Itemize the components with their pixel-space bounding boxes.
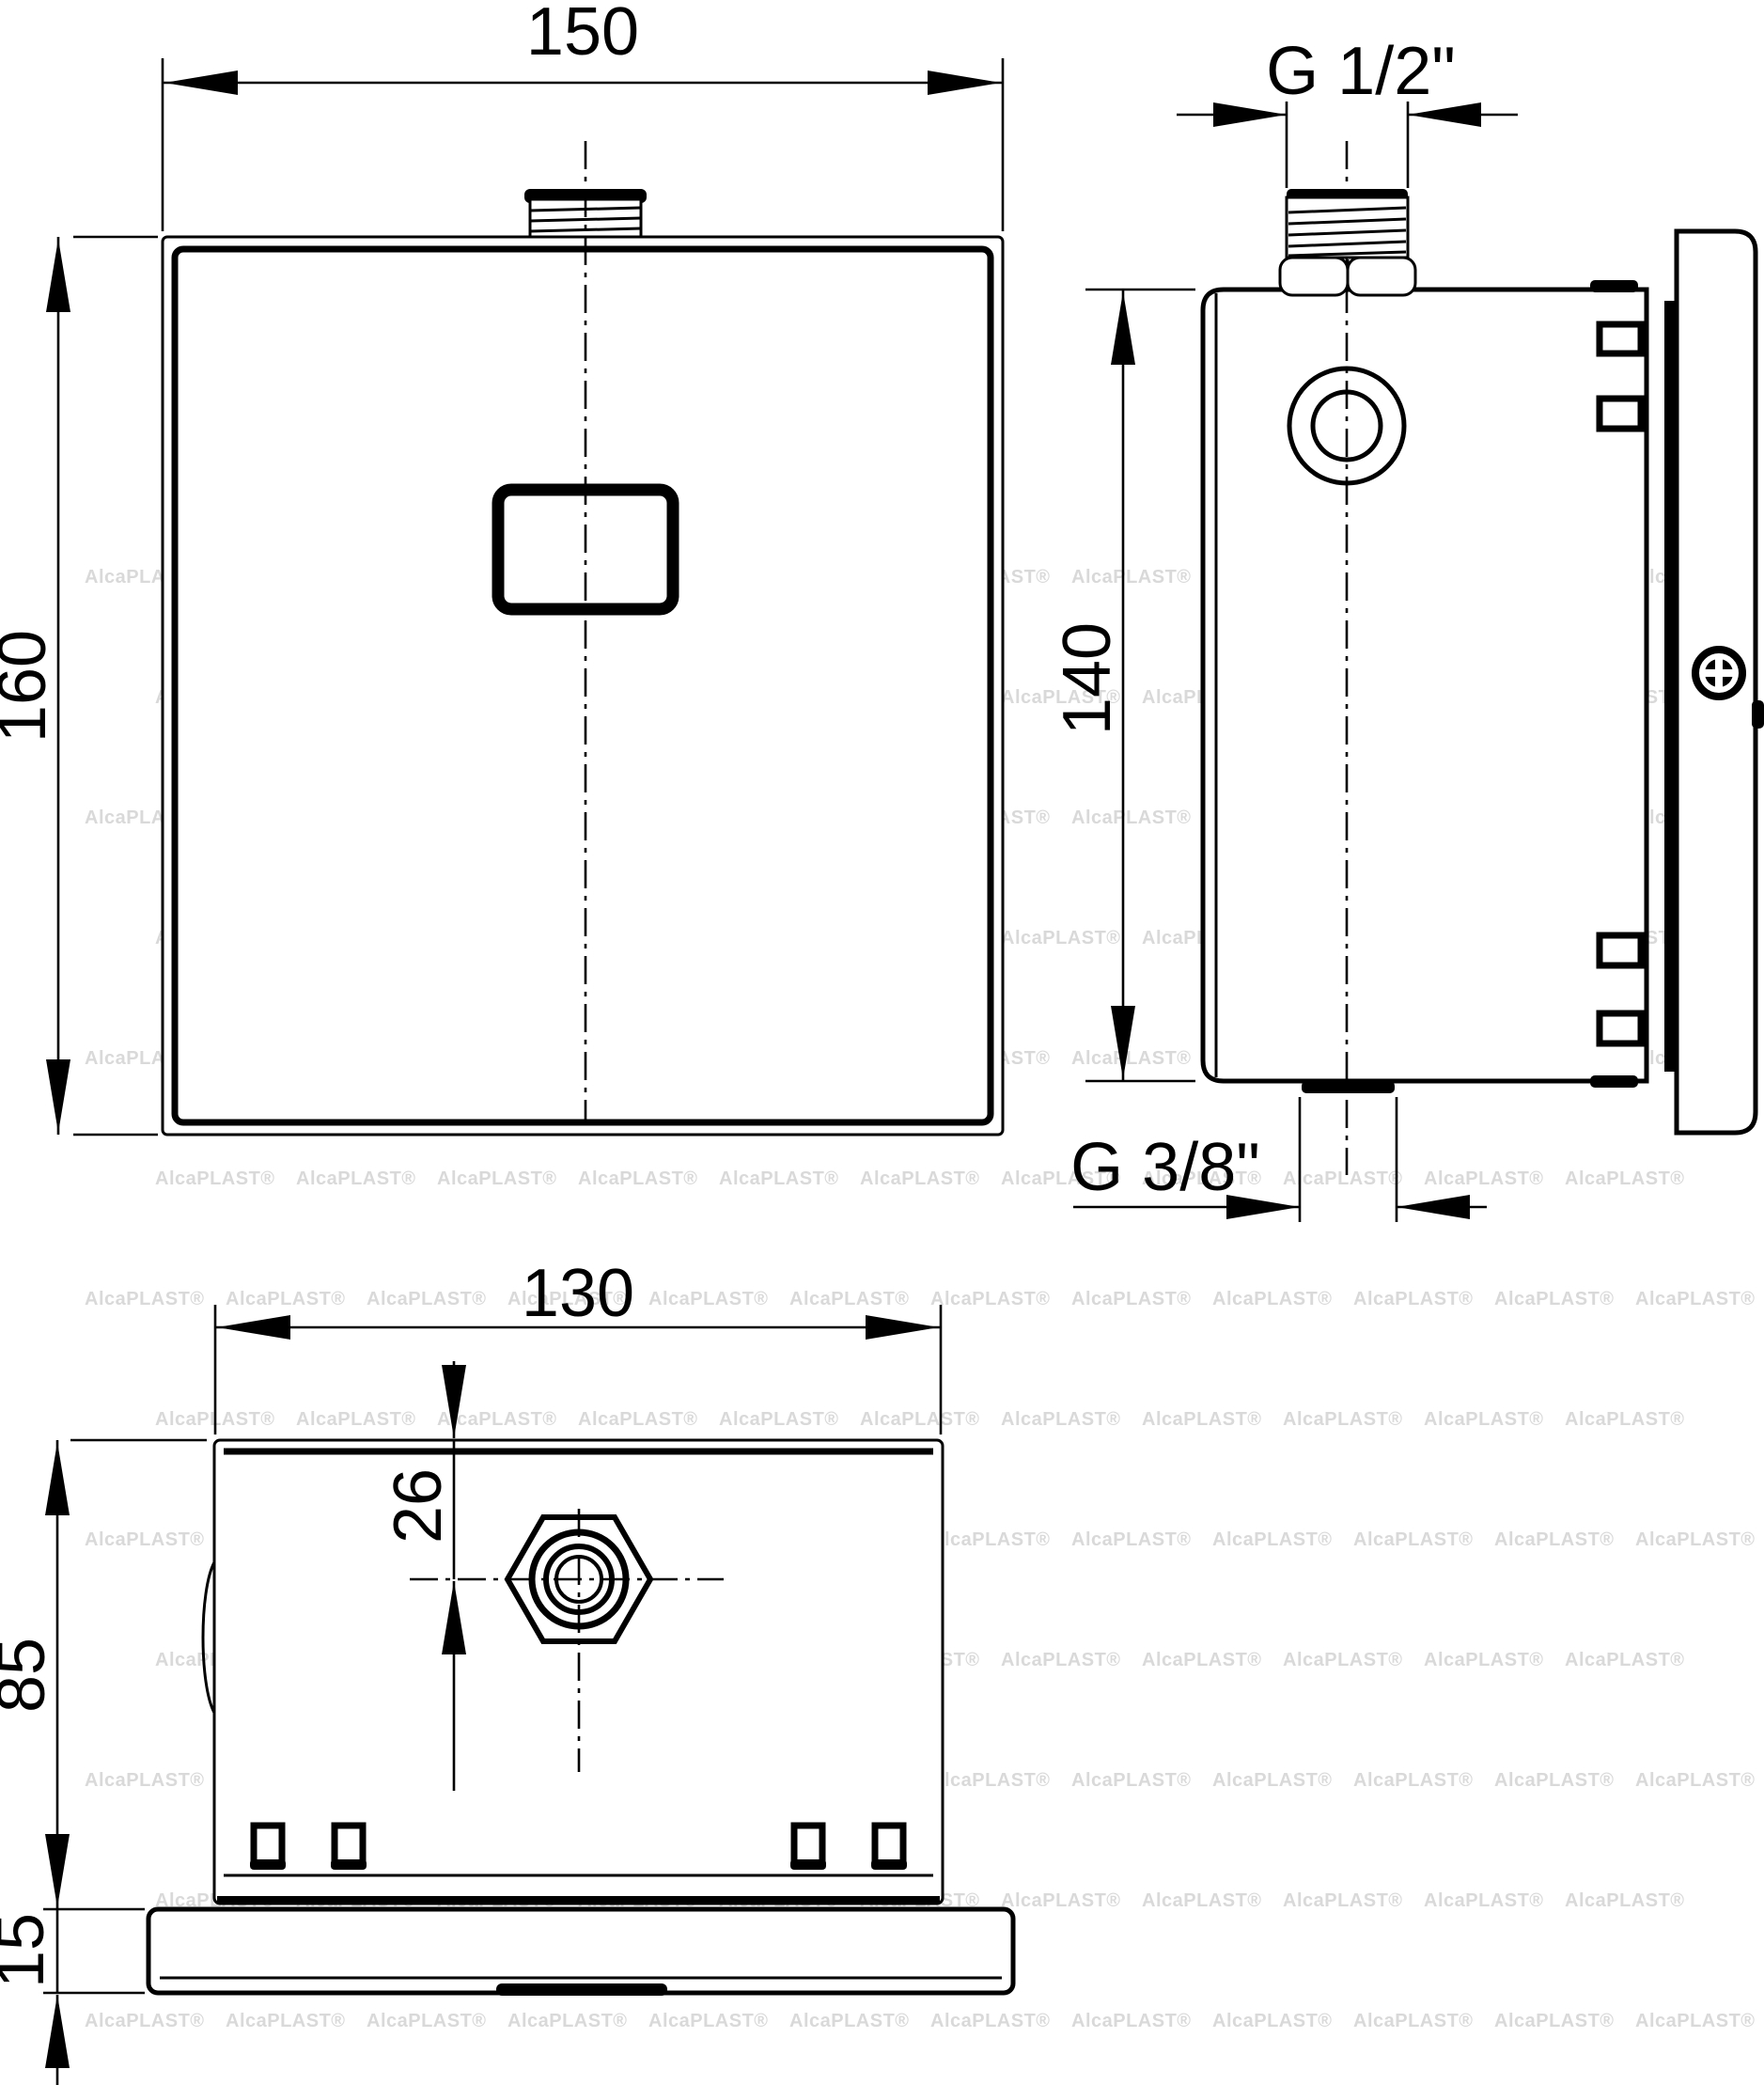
watermark-text: AlcaPLAST® — [85, 1289, 205, 1309]
arrowhead — [46, 1059, 70, 1133]
watermark-text: AlcaPLAST® — [648, 2011, 769, 2031]
watermark-text: AlcaPLAST® — [1071, 1048, 1192, 1069]
watermark-text: AlcaPLAST® — [1001, 1409, 1121, 1430]
plate-hook — [1752, 700, 1764, 729]
front-panel — [163, 237, 1003, 1135]
watermark-text: AlcaPLAST® — [1565, 1890, 1685, 1911]
watermark-text: AlcaPLAST® — [930, 1529, 1051, 1550]
side-top-thread-pipe — [1280, 189, 1415, 295]
arrowhead — [45, 1442, 70, 1515]
watermark-text: AlcaPLAST® — [1494, 1289, 1615, 1309]
watermark-text: AlcaPLAST® — [1353, 1529, 1474, 1550]
watermark-text: AlcaPLAST® — [1353, 1770, 1474, 1791]
clip-foot — [250, 1859, 286, 1870]
dim-bottom-width: 130 — [215, 1256, 941, 1434]
dim-label-bottom-depth: 85 — [0, 1638, 59, 1713]
watermark-text: AlcaPLAST® — [1142, 1650, 1262, 1670]
watermark-text: AlcaPLAST® — [930, 1770, 1051, 1791]
clip-foot — [790, 1859, 826, 1870]
watermark-text: AlcaPLAST® — [578, 1168, 698, 1189]
watermark-text: AlcaPLAST® — [1212, 1289, 1333, 1309]
clip-square — [254, 1826, 282, 1865]
watermark-text: AlcaPLAST® — [1142, 1409, 1262, 1430]
watermark-text: AlcaPLAST® — [1565, 1650, 1685, 1670]
bottom-body — [203, 1440, 943, 1904]
watermark-text: AlcaPLAST® — [1212, 2011, 1333, 2031]
watermark-text: AlcaPLAST® — [1424, 1650, 1544, 1670]
side-view: G 1/2" 140 G 3/8" — [1050, 34, 1764, 1222]
clip-square — [1600, 399, 1641, 429]
clip-top-lip — [1590, 280, 1638, 292]
arrowhead — [928, 71, 1001, 95]
arrowhead — [217, 1315, 290, 1340]
watermark-text: AlcaPLAST® — [1635, 1770, 1756, 1791]
watermark-text: AlcaPLAST® — [1071, 807, 1192, 828]
clip-foot — [871, 1859, 907, 1870]
arrowhead — [866, 1315, 939, 1340]
watermark-text: AlcaPLAST® — [578, 1409, 698, 1430]
watermark-text: AlcaPLAST® — [1283, 1890, 1403, 1911]
side-bulge-arc — [203, 1562, 214, 1713]
watermark-text: AlcaPLAST® — [1142, 1890, 1262, 1911]
watermark-text: AlcaPLAST® — [1212, 1770, 1333, 1791]
dim-label-side-height: 140 — [1050, 622, 1125, 735]
watermark-text: AlcaPLAST® — [1283, 1650, 1403, 1670]
dim-label-side-bottom-thread: G 3/8" — [1070, 1130, 1260, 1205]
watermark-text: AlcaPLAST® — [437, 1168, 557, 1189]
mounting-bracket — [1664, 231, 1764, 1133]
watermark-text: AlcaPLAST® — [1565, 1168, 1685, 1189]
watermark-text: AlcaPLAST® — [1071, 1529, 1192, 1550]
bracket-bar — [1664, 301, 1676, 1072]
clip-square — [1600, 324, 1641, 353]
watermark-text: AlcaPLAST® — [296, 1168, 416, 1189]
watermark-text: AlcaPLAST® — [789, 2011, 910, 2031]
watermark-text: AlcaPLAST® — [1001, 1890, 1121, 1911]
watermark-text: AlcaPLAST® — [1212, 1529, 1333, 1550]
watermark-text: AlcaPLAST® — [1353, 1289, 1474, 1309]
watermark-text: AlcaPLAST® — [1635, 1529, 1756, 1550]
dim-side-height: 140 — [1050, 290, 1195, 1081]
base-plate-outline — [148, 1909, 1013, 1993]
watermark-text: AlcaPLAST® — [1635, 2011, 1756, 2031]
watermark-text: AlcaPLAST® — [1494, 2011, 1615, 2031]
watermark-text: AlcaPLAST® — [85, 1529, 205, 1550]
watermark-text: AlcaPLAST® — [930, 2011, 1051, 2031]
clip-square — [1600, 1013, 1641, 1043]
dim-label-bottom-offset: 26 — [381, 1468, 456, 1544]
clip-square — [335, 1826, 363, 1865]
technical-drawing: AlcaPLAST®AlcaPLAST®AlcaPLAST®AlcaPLAST®… — [0, 0, 1764, 2085]
arrowhead — [164, 71, 238, 95]
front-panel-outer-edge — [163, 237, 1003, 1135]
watermark-text: AlcaPLAST® — [789, 1289, 910, 1309]
pipe-body — [1287, 197, 1408, 258]
side-body — [1203, 290, 1647, 1081]
watermark-text: AlcaPLAST® — [1565, 1409, 1685, 1430]
clip-square — [875, 1826, 903, 1865]
dim-label-front-height: 160 — [0, 630, 60, 743]
watermark-text: AlcaPLAST® — [226, 1289, 346, 1309]
watermark-text: AlcaPLAST® — [367, 1289, 487, 1309]
clip-bottom-lip — [1590, 1075, 1638, 1088]
dim-front-height: 160 — [0, 237, 158, 1135]
watermark-text: AlcaPLAST® — [860, 1409, 980, 1430]
watermark-text: AlcaPLAST® — [1283, 1409, 1403, 1430]
watermark-text: AlcaPLAST® — [1001, 928, 1121, 948]
arrowhead — [1111, 291, 1135, 365]
watermark-text: AlcaPLAST® — [1424, 1409, 1544, 1430]
watermark-text: AlcaPLAST® — [719, 1168, 839, 1189]
watermark-text: AlcaPLAST® — [1071, 1289, 1192, 1309]
base-plate-foot — [496, 1983, 667, 1996]
dim-plate-thickness: 15 — [0, 1909, 145, 2085]
watermark-text: AlcaPLAST® — [719, 1409, 839, 1430]
watermark-text: AlcaPLAST® — [1071, 567, 1192, 588]
dim-label-side-top-thread: G 1/2" — [1266, 34, 1456, 109]
side-bottom-outlet-stub — [1302, 1081, 1395, 1093]
dim-label-bottom-width: 130 — [522, 1256, 634, 1331]
watermark-text: AlcaPLAST® — [1424, 1168, 1544, 1189]
watermark-text: AlcaPLAST® — [1353, 2011, 1474, 2031]
clip-square — [1600, 935, 1641, 965]
hex-nut-facet — [1348, 258, 1415, 295]
dim-bottom-depth: 85 — [0, 1440, 207, 1909]
watermark-text: AlcaPLAST® — [1001, 1650, 1121, 1670]
watermark-text: AlcaPLAST® — [1494, 1770, 1615, 1791]
hex-nut-facet — [1280, 258, 1348, 295]
watermark-text: AlcaPLAST® — [507, 2011, 628, 2031]
watermark-text: AlcaPLAST® — [296, 1409, 416, 1430]
watermark-text: AlcaPLAST® — [85, 2011, 205, 2031]
bottom-view: 130 26 85 15 — [0, 1256, 1013, 2085]
drawing-canvas: AlcaPLAST®AlcaPLAST®AlcaPLAST®AlcaPLAST®… — [0, 0, 1764, 2085]
watermark-text: AlcaPLAST® — [648, 1289, 769, 1309]
watermark-text: AlcaPLAST® — [1635, 1289, 1756, 1309]
watermark-text: AlcaPLAST® — [930, 1289, 1051, 1309]
watermark-text: AlcaPLAST® — [367, 2011, 487, 2031]
dim-side-bottom-thread: G 3/8" — [1070, 1097, 1487, 1222]
base-plate — [148, 1909, 1013, 1996]
dim-label-front-width: 150 — [526, 0, 639, 70]
watermark-text: AlcaPLAST® — [1424, 1890, 1544, 1911]
arrowhead — [45, 1995, 70, 2068]
watermark-text: AlcaPLAST® — [85, 1770, 205, 1791]
watermark-text: AlcaPLAST® — [860, 1168, 980, 1189]
watermark-text: AlcaPLAST® — [1071, 1770, 1192, 1791]
arrowhead — [1397, 1195, 1470, 1219]
pipe-hex-nut — [1280, 258, 1415, 295]
watermark-text: AlcaPLAST® — [1494, 1529, 1615, 1550]
dim-label-plate-thickness: 15 — [0, 1913, 58, 1988]
arrowhead — [45, 1834, 70, 1907]
watermark-text: AlcaPLAST® — [226, 2011, 346, 2031]
arrowhead — [46, 239, 70, 312]
watermark-text: AlcaPLAST® — [155, 1168, 275, 1189]
screw-slot — [1704, 669, 1734, 677]
watermark-text: AlcaPLAST® — [1071, 2011, 1192, 2031]
clip-square — [794, 1826, 822, 1865]
clip-foot — [331, 1859, 367, 1870]
